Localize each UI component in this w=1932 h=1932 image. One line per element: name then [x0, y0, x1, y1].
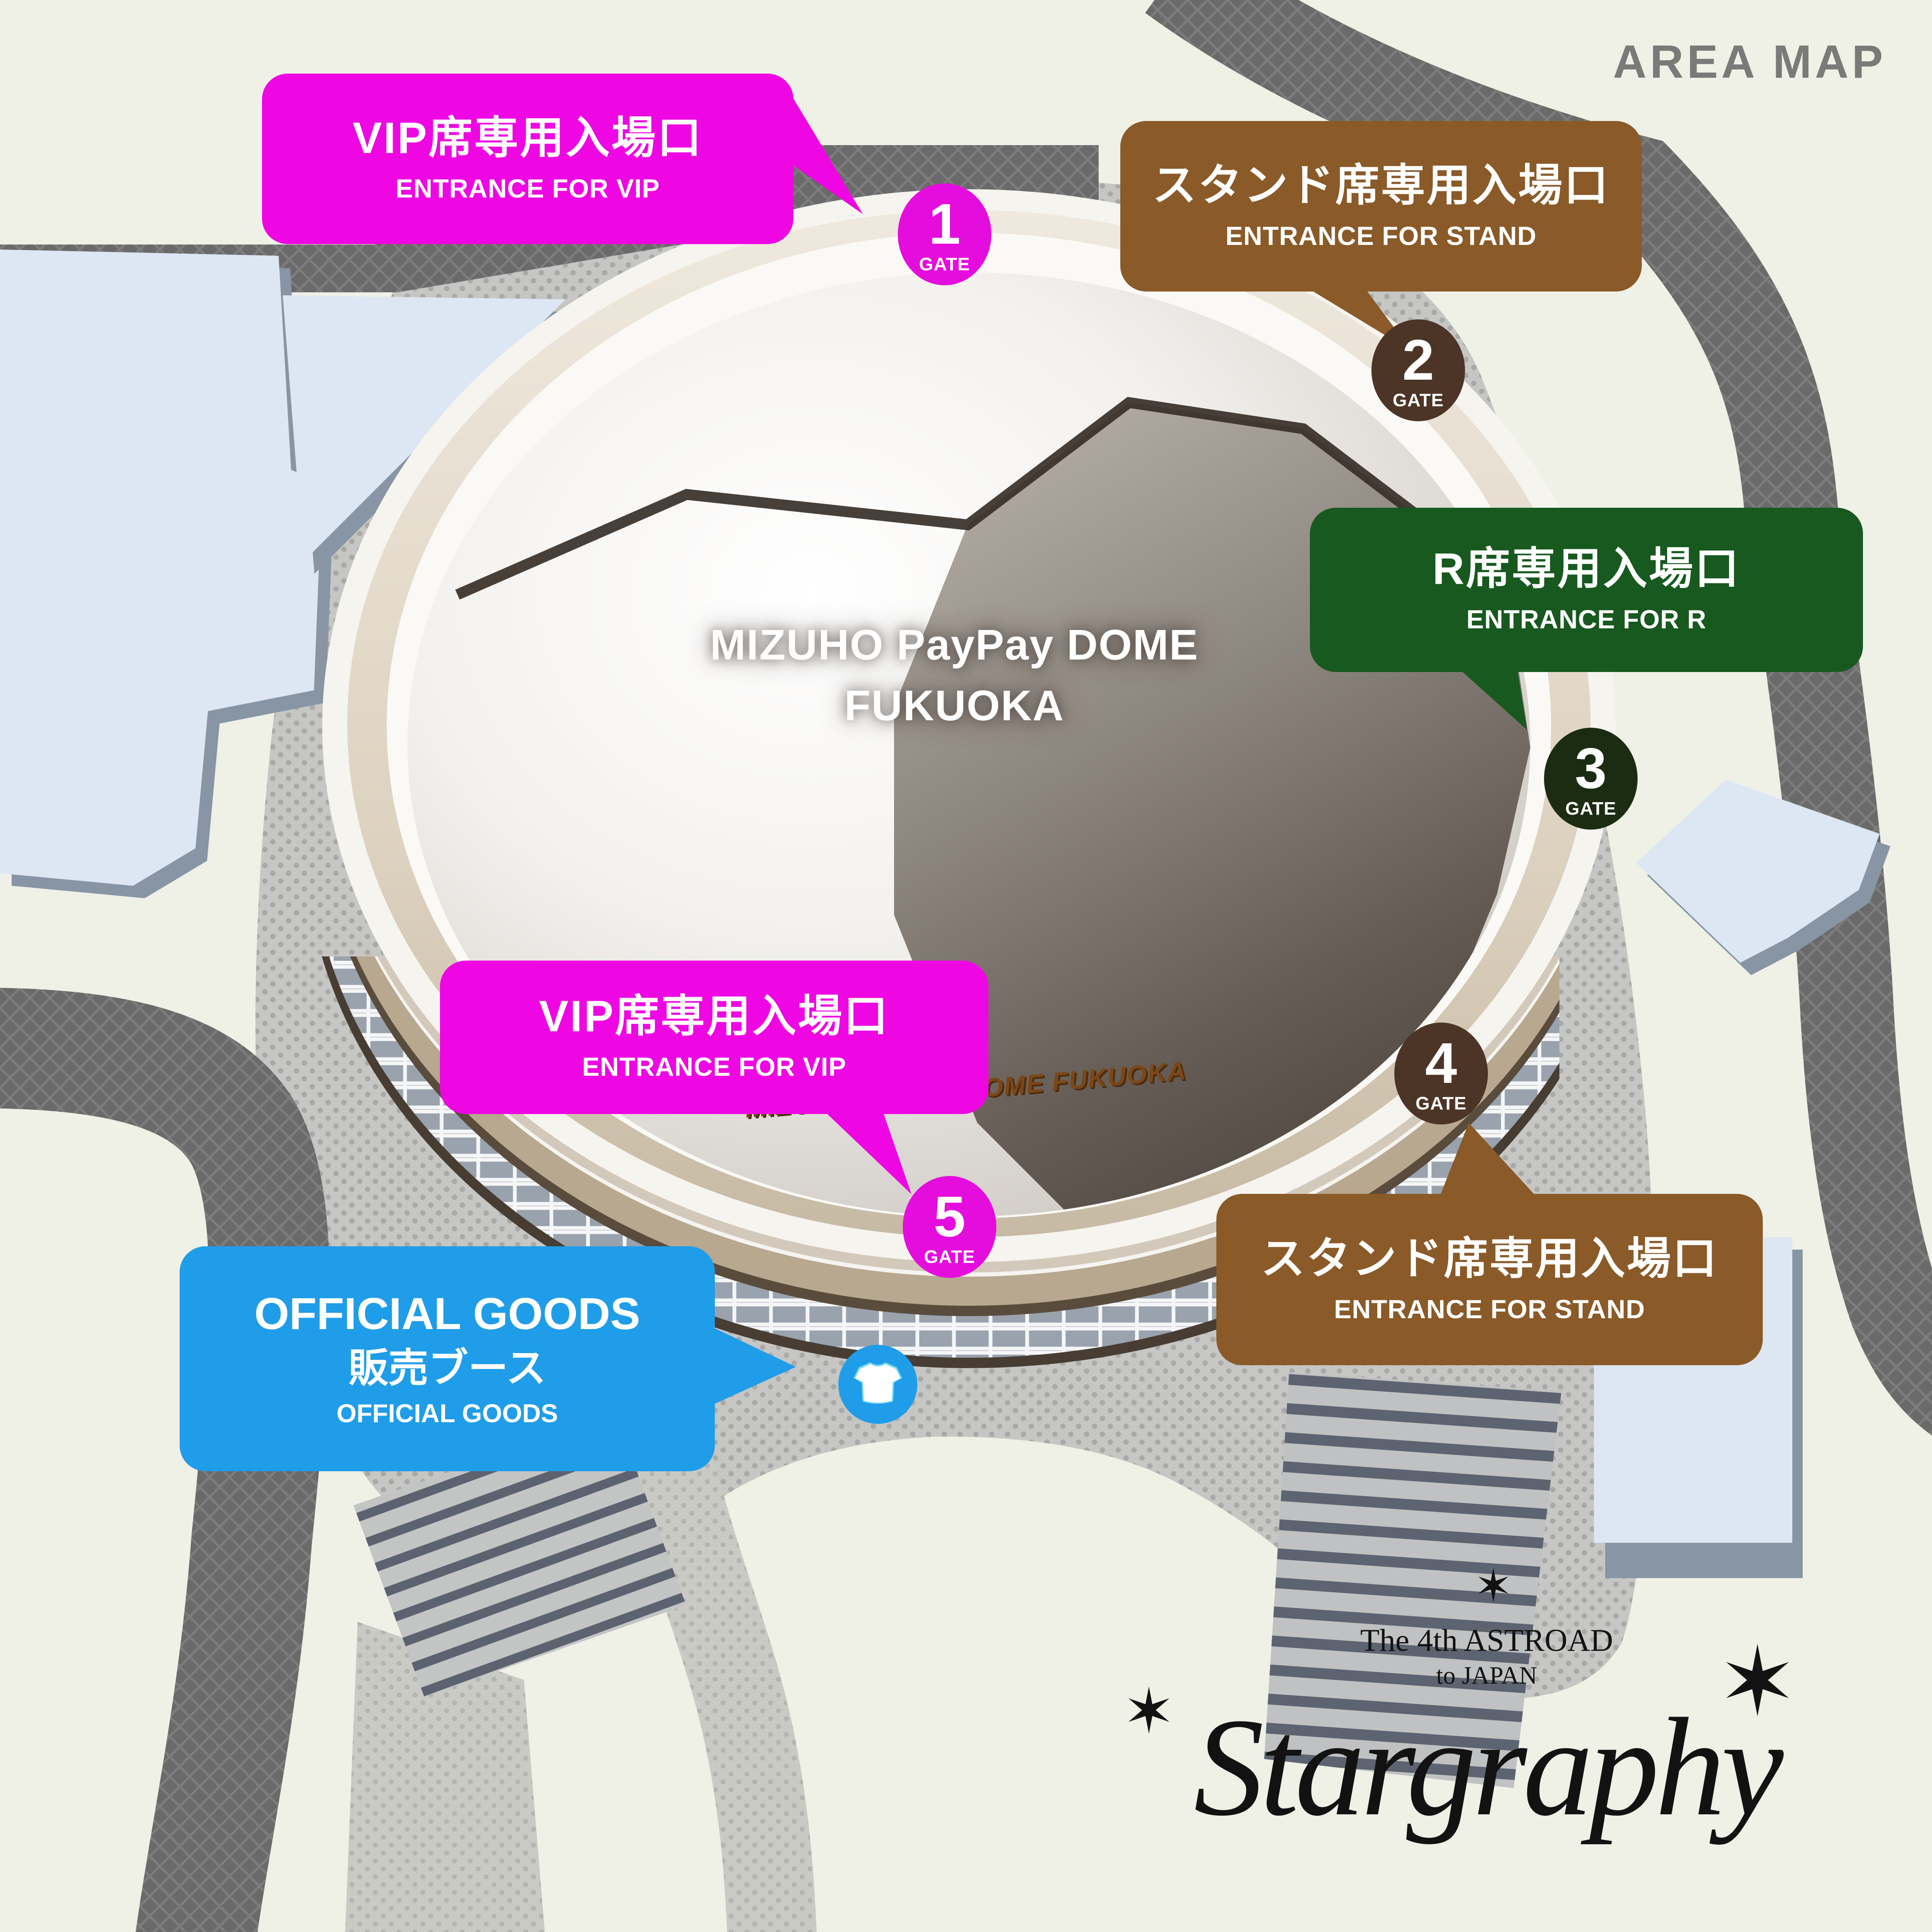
gate-2-label: GATE	[1393, 391, 1444, 410]
gate-1-label: GATE	[919, 255, 970, 274]
gate-5-badge: 5 GATE	[903, 1176, 996, 1278]
callout-vip-top: VIP席専用入場口 ENTRANCE FOR VIP	[262, 74, 793, 244]
dome-name-label: MIZUHO PayPay DOME FUKUOKA	[570, 615, 1339, 736]
callout-goods-jp: 販売ブース	[348, 1349, 546, 1388]
gate-3-number: 3	[1575, 740, 1607, 797]
callout-stand-top: スタンド席専用入場口 ENTRANCE FOR STAND	[1120, 121, 1642, 292]
gate-5-label: GATE	[924, 1248, 975, 1266]
callout-official-goods: OFFICIAL GOODS 販売ブース OFFICIAL GOODS	[180, 1246, 715, 1471]
callout-goods-line1: OFFICIAL GOODS	[254, 1291, 640, 1336]
callout-stand-top-en: ENTRANCE FOR STAND	[1225, 223, 1537, 250]
gate-4-label: GATE	[1416, 1094, 1467, 1113]
sparkle-star-right: ✶	[1717, 1634, 1798, 1730]
dome-name-line1: MIZUHO PayPay DOME	[570, 615, 1339, 675]
callout-r-side-jp: R席専用入場口	[1433, 547, 1741, 591]
callout-vip-bottom: VIP席専用入場口 ENTRANCE FOR VIP	[440, 961, 988, 1114]
tshirt-icon	[851, 1359, 905, 1411]
gate-4-badge: 4 GATE	[1394, 1023, 1488, 1124]
gate-1-number: 1	[929, 195, 961, 253]
gate-3-label: GATE	[1565, 800, 1616, 818]
sparkle-star-left: ✶	[1123, 1680, 1175, 1742]
page-title: AREA MAP	[1613, 35, 1886, 89]
callout-stand-bottom-jp: スタンド席専用入場口	[1261, 1237, 1718, 1281]
callout-vip-top-en: ENTRANCE FOR VIP	[395, 176, 660, 202]
callout-stand-top-jp: スタンド席専用入場口	[1152, 163, 1610, 208]
dome-name-line2: FUKUOKA	[570, 675, 1339, 736]
callout-vip-bottom-en: ENTRANCE FOR VIP	[582, 1054, 847, 1080]
gate-3-badge: 3 GATE	[1544, 728, 1638, 830]
callout-vip-bottom-jp: VIP席専用入場口	[539, 994, 889, 1038]
gate-2-badge: 2 GATE	[1371, 319, 1465, 421]
callout-r-side: R席専用入場口 ENTRANCE FOR R	[1310, 508, 1863, 672]
callout-vip-top-jp: VIP席専用入場口	[353, 116, 703, 160]
callout-stand-bottom-en: ENTRANCE FOR STAND	[1334, 1297, 1645, 1323]
area-map-stage: AREA MAP MIZUHO PayPay DOME FUKUOKA MIZU…	[0, 0, 1932, 1932]
callout-r-side-en: ENTRANCE FOR R	[1466, 607, 1707, 633]
gate-1-badge: 1 GATE	[898, 183, 991, 285]
callout-stand-bottom: スタンド席専用入場口 ENTRANCE FOR STAND	[1216, 1194, 1763, 1365]
gate-5-number: 5	[934, 1188, 966, 1245]
gate-4-number: 4	[1425, 1035, 1457, 1092]
gate-2-number: 2	[1402, 331, 1434, 389]
goods-marker	[838, 1345, 917, 1424]
callout-goods-line3: OFFICIAL GOODS	[336, 1401, 558, 1427]
sparkle-star-top: ✶	[1474, 1564, 1512, 1609]
